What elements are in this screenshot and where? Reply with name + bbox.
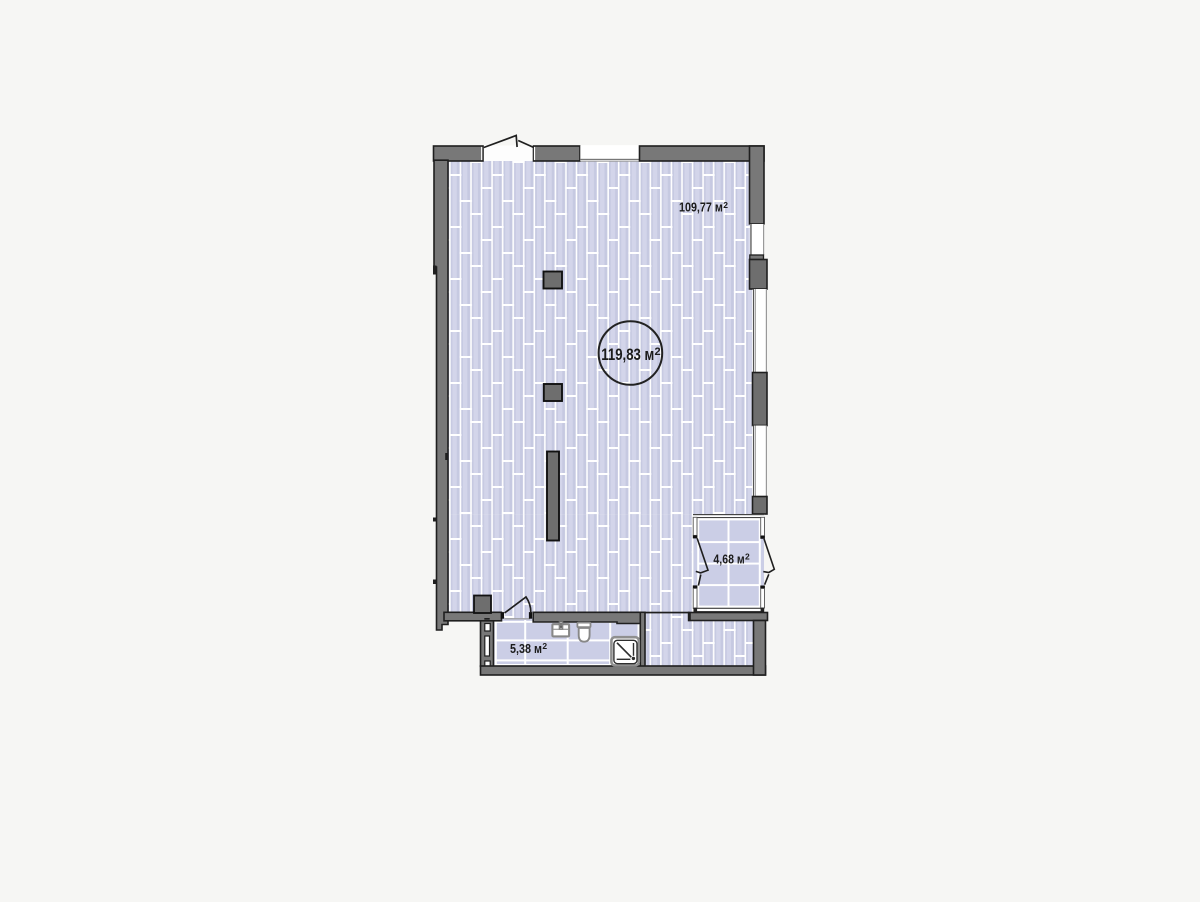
svg-text:109,77 м: 109,77 м (679, 200, 723, 215)
svg-text:2: 2 (655, 346, 661, 358)
svg-text:2: 2 (723, 200, 728, 210)
svg-text:5,38 м: 5,38 м (510, 641, 542, 656)
svg-text:4,68 м: 4,68 м (713, 552, 744, 567)
svg-text:2: 2 (542, 641, 547, 651)
svg-text:2: 2 (745, 552, 750, 562)
svg-text:119,83 м: 119,83 м (601, 346, 654, 364)
